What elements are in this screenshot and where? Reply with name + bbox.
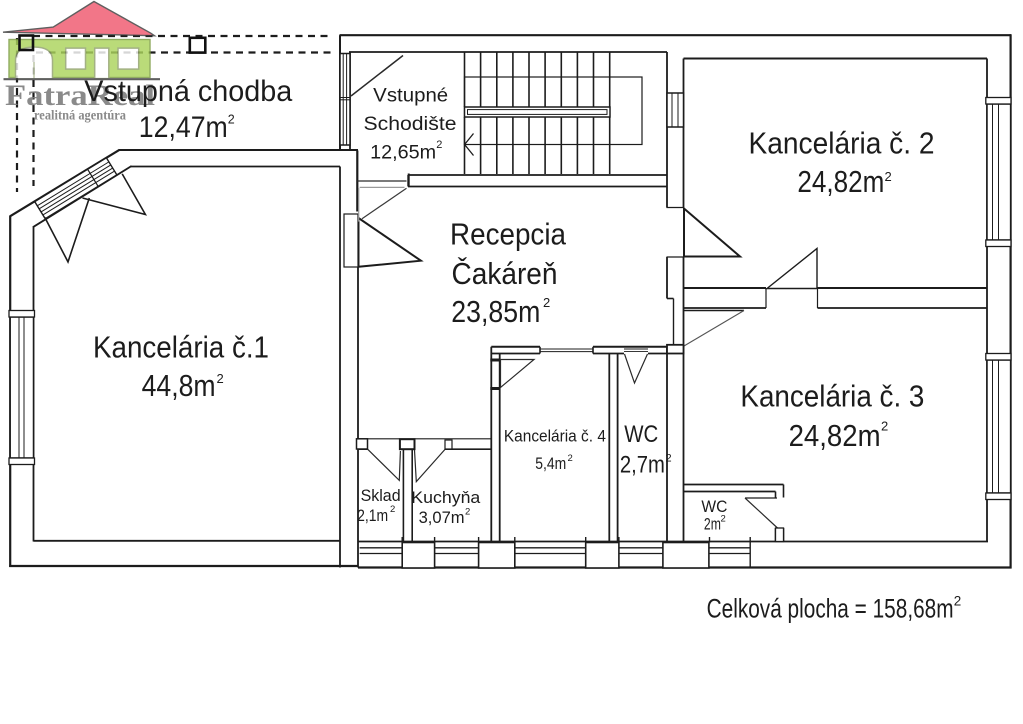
- svg-text:Kancelária č. 4: Kancelária č. 4: [504, 427, 606, 446]
- svg-text:realitná agentúra: realitná agentúra: [34, 108, 126, 123]
- svg-text:Schodište: Schodište: [364, 113, 457, 135]
- svg-text:2,1m: 2,1m: [357, 506, 388, 525]
- svg-text:Vstupné: Vstupné: [373, 85, 448, 107]
- svg-text:24,82m: 24,82m: [797, 164, 884, 199]
- svg-text:Celková plocha = 158,68m: Celková plocha = 158,68m: [707, 594, 954, 624]
- svg-text:44,8m: 44,8m: [142, 368, 216, 403]
- svg-text:Kancelária č.1: Kancelária č.1: [93, 330, 269, 365]
- svg-text:Kuchyňa: Kuchyňa: [411, 488, 481, 507]
- svg-text:2: 2: [881, 419, 888, 434]
- svg-text:2: 2: [436, 139, 442, 151]
- svg-text:2: 2: [885, 169, 892, 184]
- svg-text:2: 2: [543, 295, 550, 310]
- svg-text:2m: 2m: [704, 515, 721, 534]
- svg-text:5,4m: 5,4m: [535, 454, 566, 473]
- svg-text:3,07m: 3,07m: [419, 508, 465, 527]
- svg-text:Recepcia: Recepcia: [450, 217, 567, 252]
- svg-text:Kancelária č. 3: Kancelária č. 3: [740, 379, 924, 414]
- svg-text:2: 2: [666, 453, 672, 465]
- svg-text:Vstupná chodba: Vstupná chodba: [84, 75, 292, 108]
- svg-text:WC: WC: [624, 421, 658, 448]
- svg-text:12,65m: 12,65m: [370, 142, 436, 164]
- svg-text:Čakáreň: Čakáreň: [452, 256, 558, 291]
- svg-text:2,7m: 2,7m: [620, 451, 665, 478]
- svg-text:2: 2: [721, 514, 726, 525]
- svg-text:Kancelária č. 2: Kancelária č. 2: [749, 126, 935, 161]
- svg-text:2: 2: [568, 453, 573, 464]
- svg-text:2: 2: [217, 371, 224, 386]
- svg-text:24,82m: 24,82m: [789, 418, 881, 453]
- svg-text:2: 2: [390, 504, 395, 515]
- svg-text:Sklad: Sklad: [361, 486, 401, 505]
- svg-text:2: 2: [954, 594, 962, 609]
- svg-text:23,85m: 23,85m: [451, 294, 540, 329]
- svg-text:2: 2: [465, 507, 470, 518]
- svg-text:12,47m: 12,47m: [139, 111, 228, 144]
- svg-text:2: 2: [228, 113, 235, 127]
